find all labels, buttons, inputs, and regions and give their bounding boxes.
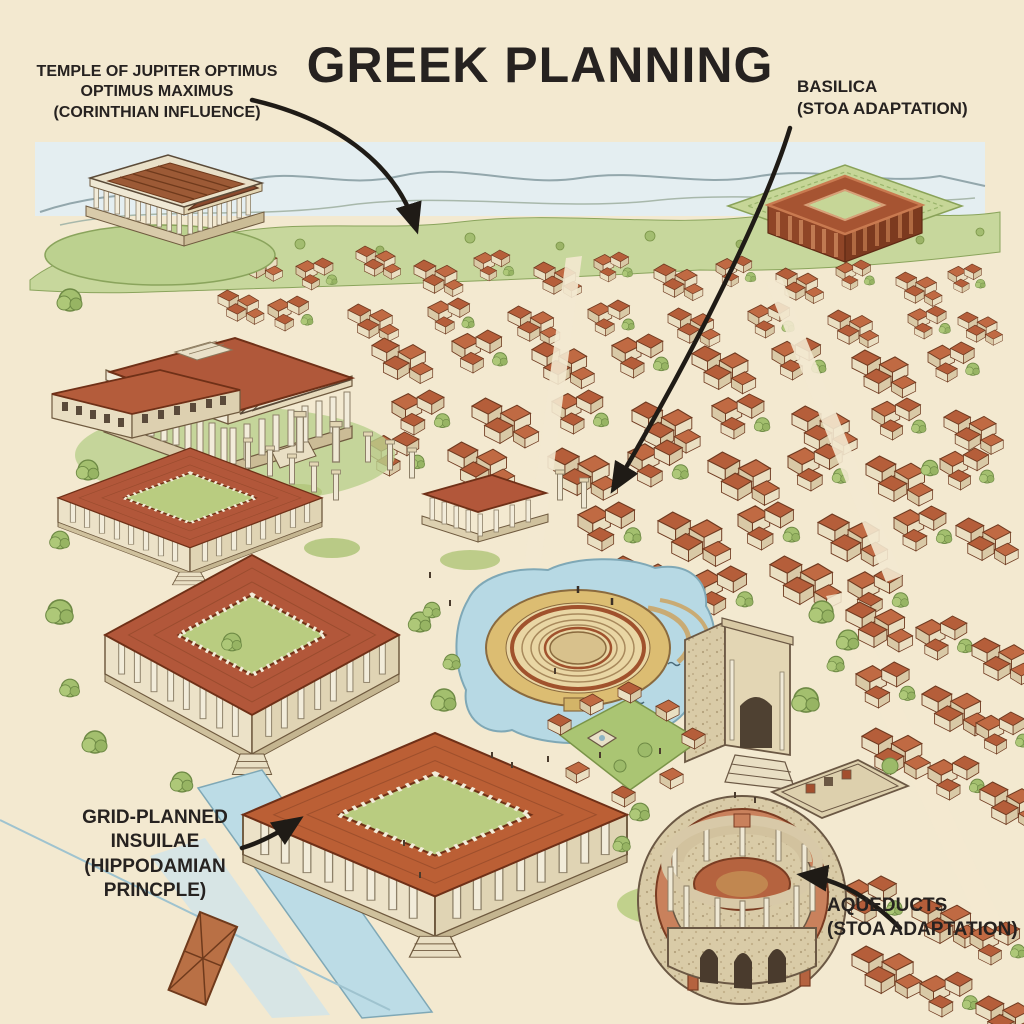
label-line: PRINCPLE) (35, 879, 275, 903)
label-basilica: BASILICA (STOA ADAPTATION) (797, 76, 968, 120)
label-aqueducts: AQUEDUCTS (STOA ADAPTATION) (827, 894, 1018, 943)
gate-arch (740, 697, 772, 748)
label-line: (STOA ADAPTATION) (797, 98, 968, 120)
label-temple-of-jupiter: TEMPLE OF JUPITER OPTIMUS OPTIMUS MAXIMU… (22, 62, 292, 123)
label-line: INSUILAE (35, 830, 275, 854)
label-line: (HIPPODAMIAN (35, 855, 275, 879)
label-line: TEMPLE OF JUPITER OPTIMUS (22, 62, 292, 82)
label-line: BASILICA (797, 76, 968, 98)
aqueduct-arch (734, 953, 752, 989)
page-title: GREEK PLANNING (307, 36, 774, 94)
label-line: (STOA ADAPTATION) (827, 918, 1018, 942)
aqueduct-arch (700, 949, 718, 984)
label-line: (CORINTHIAN INFLUENCE) (22, 103, 292, 123)
illustration-canvas: GREEK PLANNING TEMPLE OF JUPITER OPTIMUS… (0, 0, 1024, 1024)
label-line: AQUEDUCTS (827, 894, 1018, 918)
aqueduct-arch (768, 949, 786, 984)
label-line: GRID-PLANNED (35, 806, 275, 830)
label-grid-planned-insulae: GRID-PLANNED INSUILAE (HIPPODAMIAN PRINC… (35, 806, 275, 903)
tholos-aqueduct (638, 796, 846, 1004)
label-line: OPTIMUS MAXIMUS (22, 82, 292, 102)
